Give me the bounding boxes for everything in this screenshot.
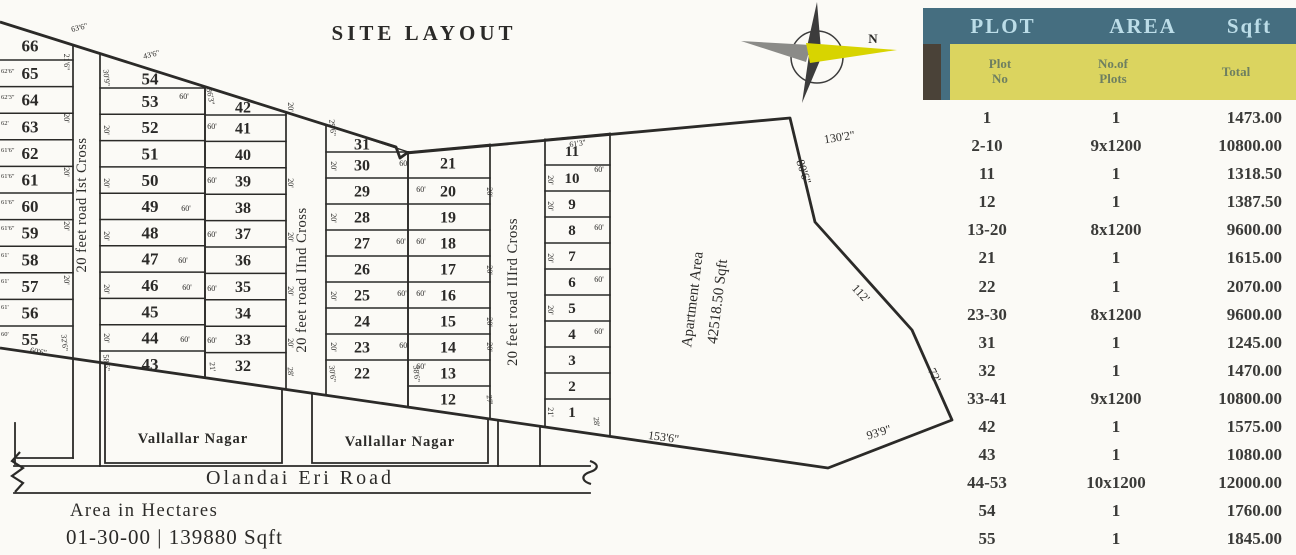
no-of-plots-cell: 1 [1051,329,1181,357]
plot-number-29: 29 [354,183,370,200]
dim-label: 60' [178,256,188,265]
dim-label: 20' [485,187,494,197]
dim-label: 20' [485,342,494,352]
plot-number-5: 5 [568,301,576,317]
edge-dim-label: 61' [1,304,9,311]
total-cell: 9600.00 [1181,216,1296,244]
brown-tab [923,44,941,100]
plot-no-cell: 23-30 [923,301,1051,329]
table-row: 2212070.00 [923,273,1296,301]
site-layout-page: 6665646362616059585756555453525150494847… [0,0,1296,555]
total-cell: 1615.00 [1181,244,1296,272]
plot-no-cell: 11 [923,160,1051,188]
plot-number-36: 36 [235,253,251,270]
plot-number-10: 10 [565,171,580,187]
dim-label: 60' [181,204,191,213]
plot-number-57: 57 [22,277,40,296]
plot-number-44: 44 [142,329,160,348]
plot-number-24: 24 [354,313,370,330]
table-header-area: AREA [1083,14,1203,39]
edge-dim-label: 61' [1,278,9,285]
dim-label: 60' [207,176,217,185]
plot-number-13: 13 [440,365,456,382]
plot-number-34: 34 [235,305,251,322]
dim-label: 20' [102,284,111,294]
dim-label: 20' [329,342,338,352]
subheader-total: Total [1176,65,1296,80]
plot-number-52: 52 [142,118,159,137]
plot-no-cell: 21 [923,244,1051,272]
table-row: 2-109x120010800.00 [923,132,1296,160]
dim-label: 60' [399,159,409,168]
dim-label: 21' [208,362,218,373]
plot-number-59: 59 [22,224,39,243]
dim-label: 20' [286,338,295,348]
nagar-box [105,363,282,463]
plot-no-cell: 12 [923,188,1051,216]
bottom-road-label: Olandai Eri Road [206,467,394,489]
dim-label: 20' [546,305,555,315]
total-cell: 1387.50 [1181,188,1296,216]
plot-number-40: 40 [235,147,251,164]
plot-no-cell: 31 [923,329,1051,357]
table-row: 33-419x120010800.00 [923,385,1296,413]
plot-number-6: 6 [568,275,576,291]
table-row: 1111318.50 [923,160,1296,188]
dim-label: 60' [594,327,604,336]
dim-label: 43'6" [142,48,160,61]
plot-no-cell: 44-53 [923,469,1051,497]
dim-label: 60' [207,122,217,131]
dim-label: 20' [329,291,338,301]
nagar-box [312,393,488,463]
plot-number-16: 16 [440,287,456,304]
nagar-label: Vallallar Nagar [345,434,455,450]
no-of-plots-cell: 1 [1051,441,1181,469]
plot-number-23: 23 [354,339,370,356]
table-row: 13-208x12009600.00 [923,216,1296,244]
plot-number-25: 25 [354,287,370,304]
dim-label: 60' [594,275,604,284]
no-of-plots-cell: 1 [1051,413,1181,441]
plot-number-22: 22 [354,365,370,382]
no-of-plots-cell: 1 [1051,497,1181,525]
dim-label: 60' [416,185,426,194]
dim-label: 20' [62,275,71,285]
dim-label: 60' [207,230,217,239]
table-rows: 111473.002-109x120010800.001111318.50121… [923,104,1296,554]
plot-no-cell: 43 [923,441,1051,469]
dim-label: 36'3" [205,88,217,106]
dim-label: 20' [329,213,338,223]
plot-no-cell: 2-10 [923,132,1051,160]
apartment-area-sqft: 42518.50 Sqft [705,258,731,345]
no-of-plots-cell: 1 [1051,188,1181,216]
no-of-plots-cell: 9x1200 [1051,132,1181,160]
area-note-hectares: Area in Hectares [70,501,218,521]
dim-label: 60' [396,237,406,246]
plot-number-51: 51 [142,145,159,164]
edge-dim-label: 62'3" [1,94,15,101]
plot-number-27: 27 [354,235,370,252]
dim-label: 60' [180,335,190,344]
edge-dim-label: 61'6" [1,173,15,180]
dim-label: 60' [182,283,192,292]
plot-number-62: 62 [22,144,39,163]
plot-number-65: 65 [22,64,39,83]
dim-label: 20' [329,161,338,171]
table-row: 4311080.00 [923,441,1296,469]
plot-number-60: 60 [22,197,39,216]
dim-label: 60' [399,341,409,350]
plot-number-56: 56 [22,303,39,322]
plot-number-21: 21 [440,156,456,173]
plot-number-4: 4 [568,327,576,343]
dim-label: 27' [485,395,495,406]
plot-number-33: 33 [235,332,251,349]
road-end-mark [583,461,596,484]
dim-label: 20' [286,102,295,112]
table-row: 4211575.00 [923,413,1296,441]
no-of-plots-cell: 1 [1051,273,1181,301]
dim-label: 20' [286,232,295,242]
subheader-labels: Plot No No.of Plots Total [950,44,1296,100]
plot-number-3: 3 [568,353,576,369]
dim-label: 20' [485,265,494,275]
compass-east-blade [806,43,897,63]
plot-no-cell: 22 [923,273,1051,301]
no-of-plots-cell: 1 [1051,244,1181,272]
table-row: 44-5310x120012000.00 [923,469,1296,497]
table-row: 23-308x12009600.00 [923,301,1296,329]
total-cell: 1080.00 [1181,441,1296,469]
total-cell: 10800.00 [1181,385,1296,413]
dim-label: 60'6" [29,346,47,358]
plot-number-35: 35 [235,279,251,296]
dim-label: 20' [102,125,111,135]
plot-number-18: 18 [440,235,456,252]
plot-number-28: 28 [354,209,370,226]
dim-label: 20' [102,231,111,241]
boundary-dim: 112' [849,281,873,305]
plot-number-19: 19 [440,209,456,226]
dim-label: 20' [102,333,111,343]
apartment-area-label: Apartment Area [679,250,707,348]
plot-number-49: 49 [142,197,159,216]
table-row: 111473.00 [923,104,1296,132]
plot-number-30: 30 [354,157,370,174]
no-of-plots-cell: 1 [1051,104,1181,132]
dim-label: 32'6" [59,334,69,351]
plot-no-cell: 32 [923,357,1051,385]
dim-label: 61'3" [569,138,587,149]
plot-number-15: 15 [440,313,456,330]
plot-number-41: 41 [235,121,251,138]
plot-no-cell: 54 [923,497,1051,525]
total-cell: 12000.00 [1181,469,1296,497]
dim-label: 28' [592,417,602,428]
dim-label: 21' [546,407,555,417]
total-cell: 9600.00 [1181,301,1296,329]
dim-label: 30'9" [101,69,111,86]
total-cell: 1845.00 [1181,525,1296,553]
plot-no-cell: 55 [923,525,1051,553]
dim-label: 28' [286,367,296,378]
total-cell: 1575.00 [1181,413,1296,441]
no-of-plots-cell: 1 [1051,357,1181,385]
total-cell: 1318.50 [1181,160,1296,188]
boundary-dim: 130'2" [823,128,856,147]
plot-number-50: 50 [142,171,159,190]
dim-label: 20' [546,201,555,211]
table-header: PLOT AREA Sqft [923,8,1296,44]
area-note-sqft: 01-30-00 | 139880 Sqft [66,525,283,549]
table-header-plot: PLOT [923,14,1083,39]
plot-number-8: 8 [568,223,576,239]
plot-number-17: 17 [440,261,456,278]
plot-number-63: 63 [22,117,39,136]
boundary-dim: 93'9" [865,422,893,443]
table-header-sqft: Sqft [1203,14,1296,39]
dim-label: 29'6" [327,119,337,136]
table-row: 2111615.00 [923,244,1296,272]
no-of-plots-cell: 10x1200 [1051,469,1181,497]
edge-dim-label: 61' [1,252,9,259]
edge-dim-label: 62' [1,120,9,127]
dim-label: 20' [62,221,71,231]
dim-label: 60' [397,289,407,298]
plot-number-66: 66 [22,37,39,56]
plot-number-48: 48 [142,223,159,242]
table-row: 5411760.00 [923,497,1296,525]
no-of-plots-cell: 8x1200 [1051,301,1181,329]
dim-label: 20' [286,286,295,296]
plot-number-46: 46 [142,276,159,295]
compass-west-blade [741,41,811,62]
plot-number-38: 38 [235,200,251,217]
site-boundary [0,22,952,468]
dim-label: 20' [546,175,555,185]
dim-label: 20' [546,253,555,263]
plot-number-37: 37 [235,226,251,243]
dim-label: 60' [207,284,217,293]
road-label: 20 feet road IInd Cross [294,207,310,352]
plot-number-53: 53 [142,92,159,111]
plot-number-12: 12 [440,391,456,408]
plot-number-47: 47 [142,250,160,269]
total-cell: 10800.00 [1181,132,1296,160]
dim-label: 30'6" [327,365,337,382]
dim-label: 60' [207,336,217,345]
subheader-no-of-plots: No.of Plots [1050,57,1176,87]
edge-dim-label: 61'6" [1,147,15,154]
dim-label: 20' [286,178,295,188]
table-subheader: Plot No No.of Plots Total [923,44,1296,100]
no-of-plots-cell: 1 [1051,160,1181,188]
total-cell: 1245.00 [1181,329,1296,357]
boundary-dim: 80'6" [793,158,814,186]
total-cell: 1470.00 [1181,357,1296,385]
edge-dim-label: 61'6" [1,199,15,206]
road-label: 20 feet road Ist Cross [74,137,90,272]
no-of-plots-cell: 8x1200 [1051,216,1181,244]
total-cell: 2070.00 [1181,273,1296,301]
dim-label: 20' [485,317,494,327]
plot-number-32: 32 [235,358,251,375]
no-of-plots-cell: 9x1200 [1051,385,1181,413]
plot-no-cell: 33-41 [923,385,1051,413]
table-row: 1211387.50 [923,188,1296,216]
nagar-label: Vallallar Nagar [138,431,248,447]
dim-label: 60' [594,223,604,232]
table-row: 5511845.00 [923,525,1296,553]
edge-dim-label: 61'6" [1,225,15,232]
road-label: 20 feet road IIIrd Cross [505,218,521,366]
compass-n-label: N [868,31,878,46]
dim-label: 63'6" [70,21,88,34]
plot-number-45: 45 [142,302,159,321]
plot-number-20: 20 [440,183,456,200]
no-of-plots-cell: 1 [1051,525,1181,553]
dim-label: 60' [416,362,426,371]
dim-label: 58'6" [101,354,111,371]
plot-number-61: 61 [22,170,39,189]
plot-no-cell: 1 [923,104,1051,132]
plot-number-58: 58 [22,250,39,269]
page-title: SITE LAYOUT [331,21,516,45]
plot-number-26: 26 [354,261,370,278]
dim-label: 20' [62,113,71,123]
total-cell: 1473.00 [1181,104,1296,132]
plot-area-table: PLOT AREA Sqft Plot No No.of Plots Total… [923,8,1296,555]
dim-label: 60' [416,237,426,246]
subheader-plot-no: Plot No [950,57,1050,87]
dim-label: 60' [594,165,604,174]
edge-dim-label: 60' [1,331,9,338]
total-cell: 1760.00 [1181,497,1296,525]
plot-number-39: 39 [235,173,251,190]
plot-no-cell: 42 [923,413,1051,441]
dim-label: 60' [416,289,426,298]
dim-label: 20' [102,178,111,188]
plot-number-7: 7 [568,249,576,265]
edge-dim-label: 62'6" [1,68,15,75]
dim-label: 20' [62,167,71,177]
plot-number-2: 2 [568,379,576,395]
table-row: 3111245.00 [923,329,1296,357]
plot-number-64: 64 [22,91,40,110]
plot-number-14: 14 [440,339,456,356]
table-row: 3211470.00 [923,357,1296,385]
dim-label: 21'6" [62,54,71,71]
dim-label: 60' [179,92,189,101]
plot-number-1: 1 [568,405,576,421]
plot-number-9: 9 [568,197,576,213]
plot-no-cell: 13-20 [923,216,1051,244]
